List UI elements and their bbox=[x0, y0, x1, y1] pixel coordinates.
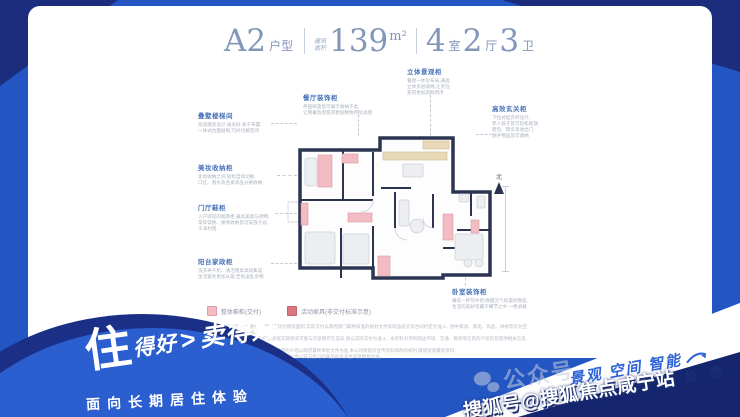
compass-label: 北 bbox=[496, 172, 502, 181]
dimension-line bbox=[505, 186, 506, 272]
ribbon-word-well: 得好 bbox=[131, 327, 179, 363]
legend-swatch-red bbox=[287, 306, 297, 316]
bath-count: 3 bbox=[499, 26, 519, 56]
bath-label: 卫 bbox=[522, 37, 534, 54]
callout-title: 阳台家政柜 bbox=[198, 256, 298, 266]
area-value: 139 bbox=[329, 26, 388, 56]
callout-foyer-shoe-cabinet: 门厅鞋柜 入户即见的端景柜,兼具美观与储物, 常穿常换、换季收纳皆可安放于此, … bbox=[198, 202, 298, 232]
title-divider bbox=[304, 28, 305, 54]
area-prefix-line2: 面积 bbox=[314, 46, 326, 53]
floorplan-card: A2 户型 建筑 面积 139 m² 4 室 2 厅 3 卫 叠墅楼梯间 宽适敞… bbox=[28, 6, 712, 358]
north-arrow-icon bbox=[494, 182, 504, 194]
callout-stairwell: 叠墅楼梯间 宽适敞亮设计,采光好,易于布置, 一体式台面层板,巧妙化解空间 bbox=[198, 110, 294, 134]
ribbon-word-sell: 卖得好 bbox=[197, 308, 279, 355]
legend-label: 活动家具(非交付标准示意) bbox=[301, 307, 371, 316]
callout-title: 美妆收纳柜 bbox=[198, 162, 294, 172]
hall-count: 2 bbox=[463, 26, 483, 56]
callout-line: 干净利落 bbox=[198, 226, 298, 232]
kitchen-counter bbox=[383, 152, 447, 160]
ac-platform bbox=[288, 202, 299, 222]
room-label: 室 bbox=[449, 37, 461, 54]
callout-line: 让用餐氛围变得更加精致有仪式感 bbox=[303, 110, 398, 116]
leader-line bbox=[271, 123, 297, 124]
title-divider bbox=[416, 28, 417, 54]
area-prefix-line1: 建筑 bbox=[314, 39, 326, 46]
compass: 北 bbox=[494, 172, 504, 194]
callout-title: 叠墅楼梯间 bbox=[198, 110, 294, 120]
callout-title: 立体景观柜 bbox=[407, 66, 469, 76]
area-prefix: 建筑 面积 bbox=[314, 39, 326, 53]
callout-line: 生活家务更加从容,告别凌乱杂物 bbox=[198, 274, 298, 280]
arrow-swoosh-icon bbox=[683, 347, 711, 365]
callout-line: 变得更加高效有序 bbox=[407, 90, 469, 96]
callout-landscape-cabinet: 立体景观柜 餐厨一体化布局,通透, 立体多层收纳,让烹饪 变得更加高效有序 bbox=[407, 66, 469, 96]
callout-dining-cabinet: 餐厅装饰柜 杯盘碗盏皆可展示收纳于此, 让用餐氛围变得更加精致有仪式感 bbox=[303, 92, 398, 116]
callout-title: 高效玄关柜 bbox=[492, 103, 554, 113]
callout-title: 餐厅装饰柜 bbox=[303, 92, 398, 102]
unit-code: A2 bbox=[224, 26, 266, 56]
unit-title: A2 户型 建筑 面积 139 m² 4 室 2 厅 3 卫 bbox=[38, 26, 722, 56]
callout-line: 一体式台面层板,巧妙化解空间 bbox=[198, 128, 294, 134]
promo-poster: A2 户型 建筑 面积 139 m² 4 室 2 厅 3 卫 叠墅楼梯间 宽适敞… bbox=[0, 0, 740, 417]
greater-than-icon: > bbox=[178, 323, 197, 356]
callout-line: 口红、香水及各类饰品分格收纳 bbox=[198, 180, 294, 186]
top-cabinet bbox=[423, 141, 449, 149]
star-icon: ✦ bbox=[290, 320, 295, 327]
floorplan-drawing bbox=[285, 130, 520, 306]
callout-title: 门厅鞋柜 bbox=[198, 202, 298, 212]
area-unit: m² bbox=[389, 29, 407, 44]
unit-code-suffix: 户型 bbox=[269, 37, 293, 54]
legend-item-furniture: 活动家具(非交付标准示意) bbox=[287, 306, 371, 316]
ribbon-char-live: 住 bbox=[82, 324, 134, 374]
hall-label: 厅 bbox=[485, 37, 497, 54]
callout-balcony-utility-cabinet: 阳台家政柜 洗衣烘干机、清洁用具高效集成, 生活家务更加从容,告别凌乱杂物 bbox=[198, 256, 298, 280]
callout-makeup-cabinet: 美妆收纳柜 化妆收纳之间,轻松自如切换, 口红、香水及各类饰品分格收纳 bbox=[198, 162, 294, 186]
room-count: 4 bbox=[426, 26, 446, 56]
